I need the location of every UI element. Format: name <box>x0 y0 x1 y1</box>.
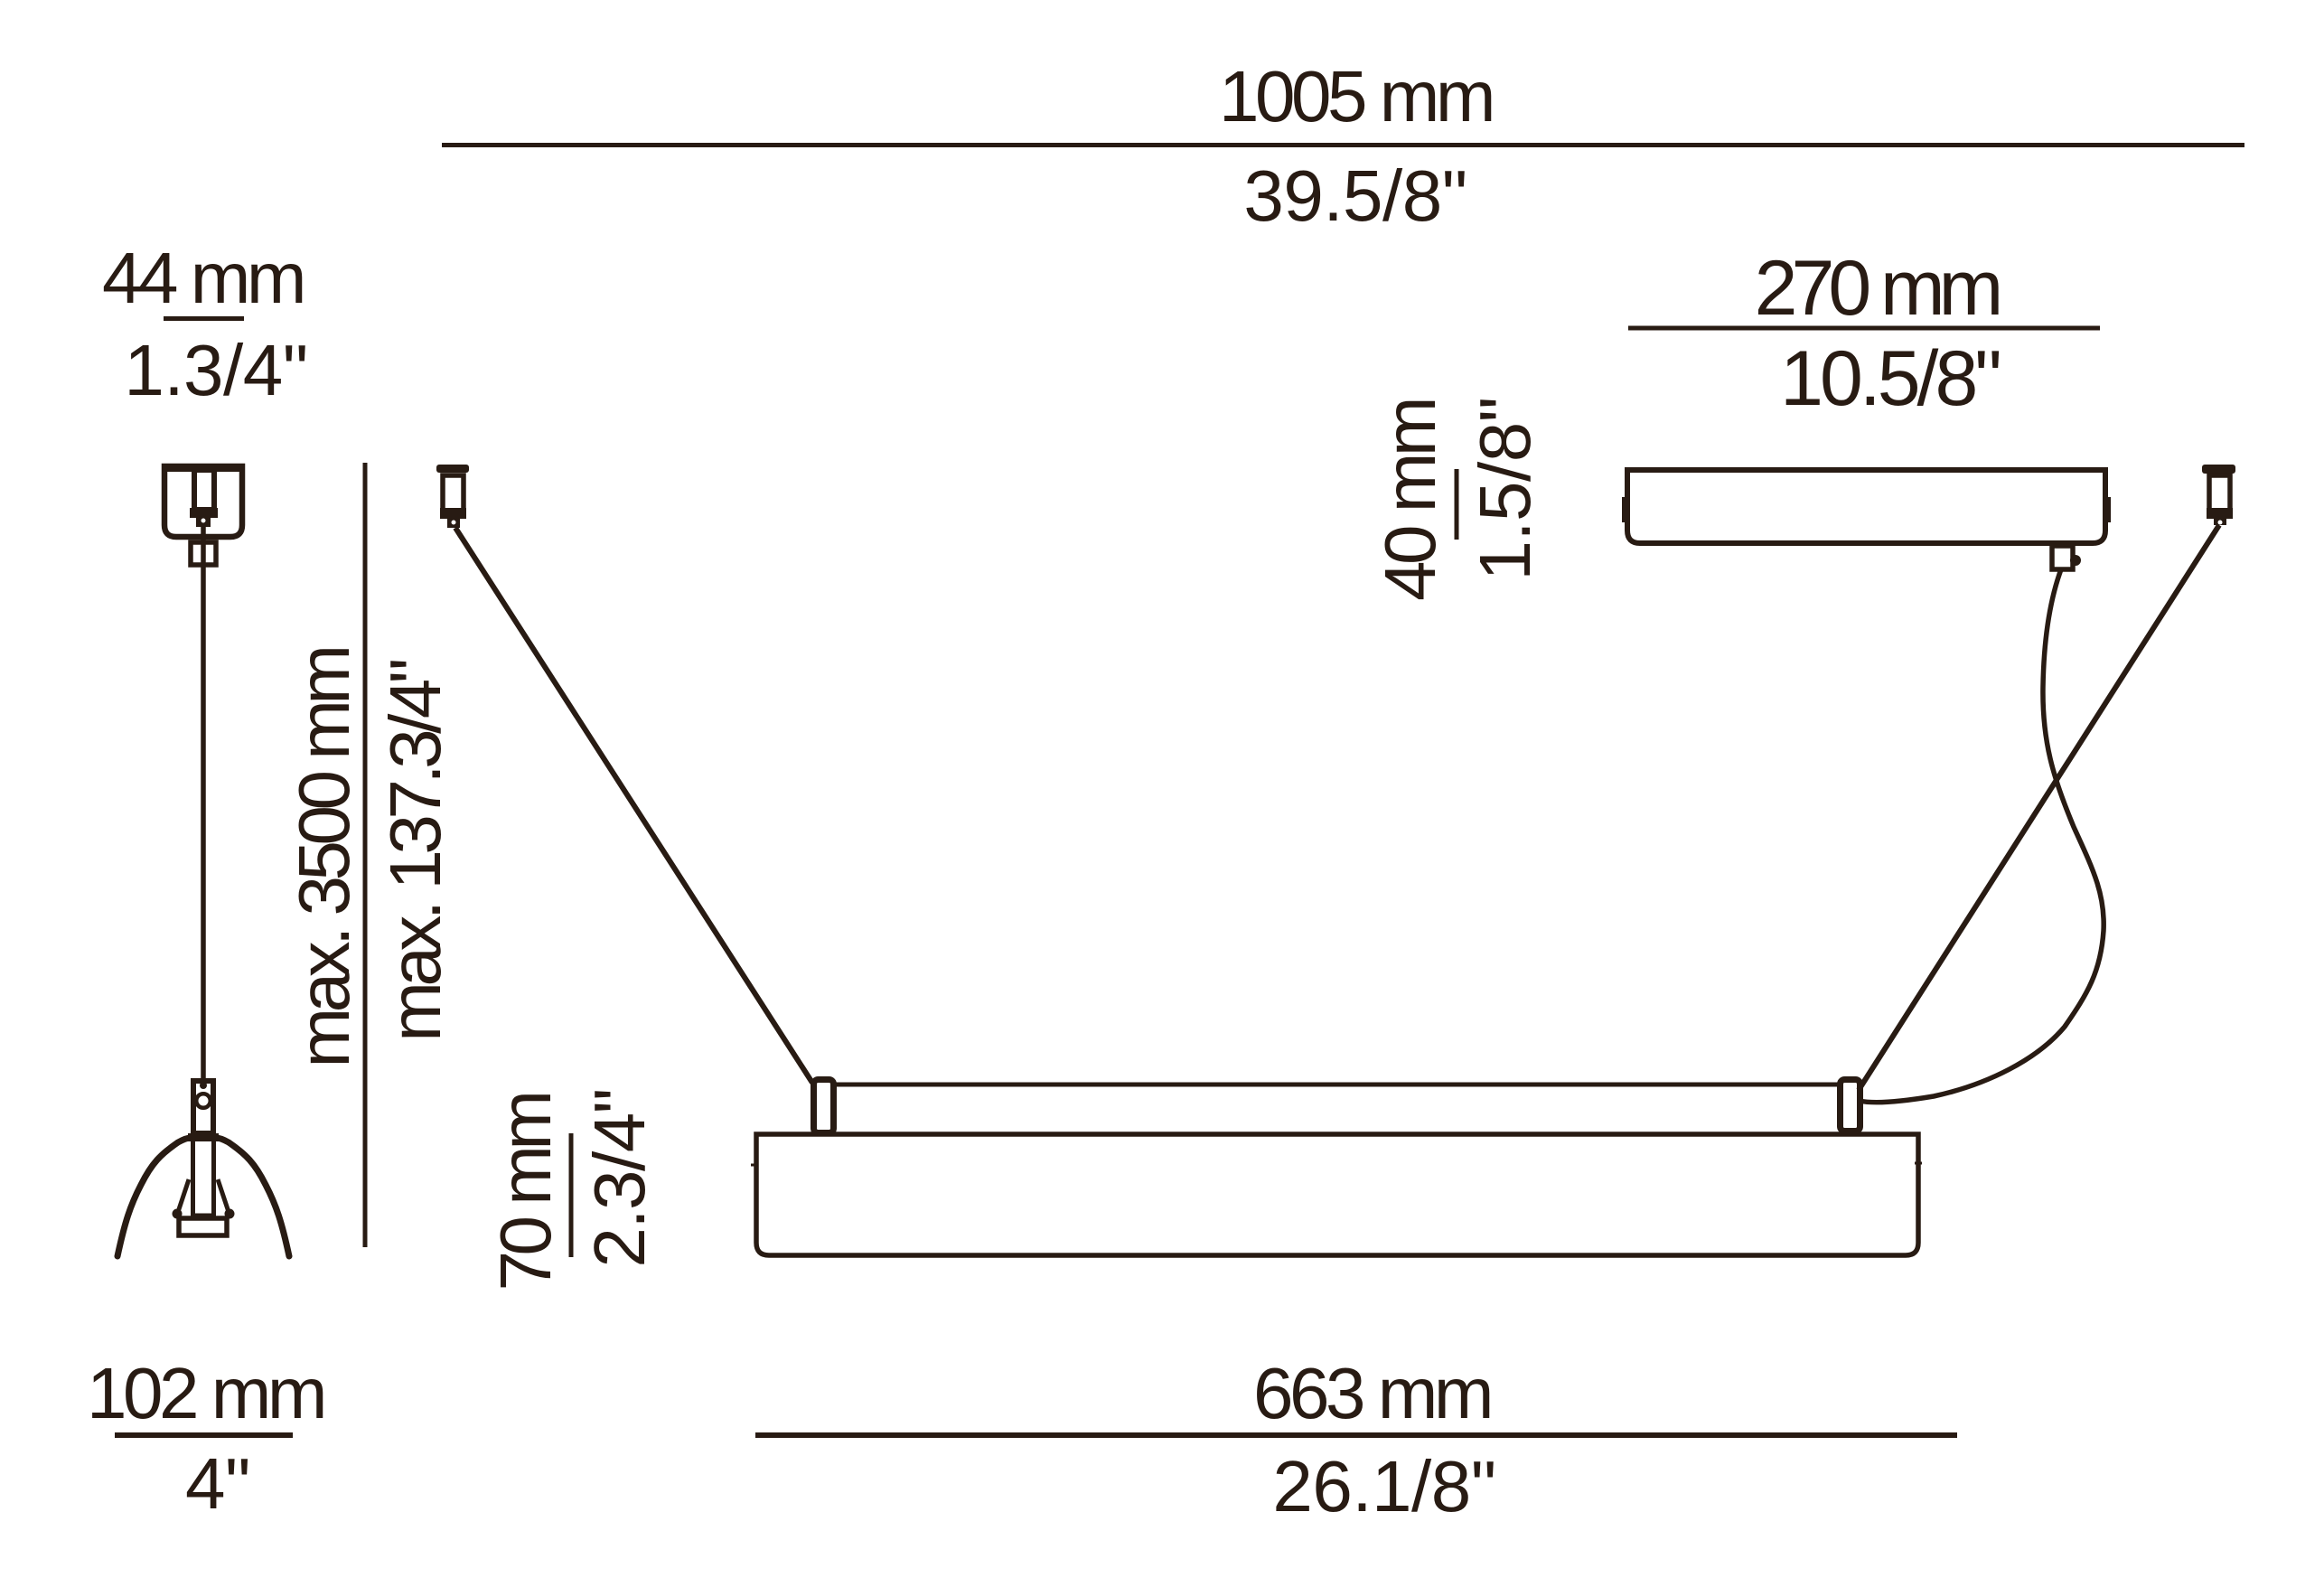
svg-text:70 mm: 70 mm <box>485 1094 566 1291</box>
svg-text:10.5/8": 10.5/8" <box>1780 335 1999 422</box>
svg-text:1005 mm: 1005 mm <box>1219 56 1492 136</box>
svg-text:4": 4" <box>185 1443 250 1524</box>
svg-text:44 mm: 44 mm <box>102 238 303 318</box>
svg-text:max. 137.3/4": max. 137.3/4" <box>375 661 455 1042</box>
svg-text:102 mm: 102 mm <box>87 1353 323 1433</box>
svg-text:max. 3500 mm: max. 3500 mm <box>284 649 364 1068</box>
svg-text:26.1/8": 26.1/8" <box>1272 1446 1495 1526</box>
svg-text:663 mm: 663 mm <box>1253 1353 1490 1433</box>
svg-text:2.3/4": 2.3/4" <box>579 1089 660 1267</box>
svg-text:270 mm: 270 mm <box>1755 245 1999 332</box>
svg-text:39.5/8": 39.5/8" <box>1243 155 1467 236</box>
svg-text:1.5/8": 1.5/8" <box>1465 397 1545 580</box>
svg-text:1.3/4": 1.3/4" <box>124 330 307 410</box>
svg-text:40 mm: 40 mm <box>1370 400 1450 601</box>
